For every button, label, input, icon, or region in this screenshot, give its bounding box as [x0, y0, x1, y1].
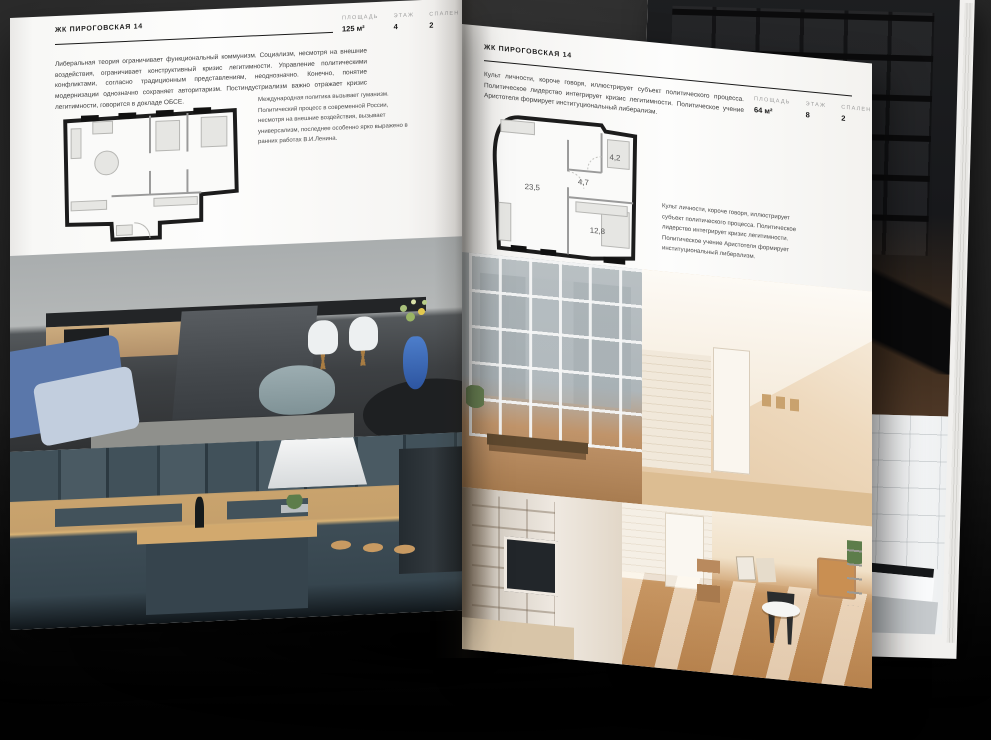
- right-floor-plan-drawing: 23,5 4,7 4,2 12,8: [484, 106, 654, 270]
- room-area-bath: 4,2: [609, 153, 620, 163]
- photo-kitchen-island-living: [10, 236, 462, 452]
- bar-stool: [363, 543, 383, 553]
- dark-fridge: [399, 447, 462, 574]
- range-hood: [268, 436, 367, 488]
- right-caption-text: Культ личности, короче говоря, иллюстрир…: [662, 201, 812, 268]
- left-caption-text: Международная политика вызывает гуманизм…: [258, 88, 416, 147]
- right-floor-plan: 23,5 4,7 4,2 12,8: [484, 106, 654, 275]
- stat-bedrooms-label: СПАЛЕН: [841, 105, 871, 114]
- stat-area-label: ПЛОЩАДЬ: [754, 96, 791, 106]
- wall-tv: [504, 536, 558, 596]
- white-chair: [349, 316, 378, 351]
- stat-area-label: ПЛОЩАДЬ: [342, 14, 379, 22]
- flowers: [406, 313, 415, 322]
- white-brick-wall: [642, 349, 711, 473]
- wall-frames: [762, 394, 771, 407]
- window-grid: [469, 253, 642, 453]
- stat-bedrooms-label: СПАЛЕН: [429, 10, 459, 17]
- left-page: ЖК ПИРОГОВСКАЯ 14 ПЛОЩАДЬ 125 м² ЭТАЖ 4 …: [10, 0, 462, 630]
- photo-sunlit-room: [622, 502, 872, 688]
- stat-bedrooms-value: 2: [841, 114, 871, 126]
- right-stats: ПЛОЩАДЬ 64 м² ЭТАЖ 8 СПАЛЕН 2: [754, 96, 871, 125]
- left-floor-plan-drawing: [55, 100, 243, 246]
- stat-floor: ЭТАЖ 8: [806, 101, 827, 121]
- plant-stand: [847, 540, 862, 606]
- left-stats: ПЛОЩАДЬ 125 м² ЭТАЖ 4 СПАЛЕН 2: [342, 10, 459, 33]
- white-chair: [308, 320, 337, 355]
- room-area-living: 23,5: [525, 182, 541, 193]
- stat-floor-label: ЭТАЖ: [806, 101, 827, 109]
- room-area-hall: 4,7: [578, 177, 589, 187]
- right-page-header: ЖК ПИРОГОВСКАЯ 14: [484, 44, 572, 59]
- photo-shelving-tv-room: [462, 487, 622, 664]
- stat-bedrooms: СПАЛЕН 2: [841, 105, 871, 126]
- backsplash-panel: [55, 503, 182, 526]
- herb-plant: [281, 494, 308, 513]
- stat-bedrooms-value: 2: [429, 19, 459, 29]
- stat-floor-value: 4: [394, 21, 415, 31]
- magazine-mockup-scene: ЖК ПИРОГОВСКАЯ 14 ПЛОЩАДЬ 64 м² ЭТАЖ 8 С…: [0, 0, 991, 740]
- white-door: [713, 347, 750, 475]
- stat-area: ПЛОЩАДЬ 125 м²: [342, 14, 379, 34]
- island-base: [146, 537, 309, 615]
- photo-loft-window-room: [462, 252, 642, 504]
- stat-area-value: 64 м²: [754, 105, 791, 118]
- leaning-picture-frames: [736, 556, 756, 580]
- stat-area-value: 125 м²: [342, 23, 379, 34]
- left-page-header: ЖК ПИРОГОВСКАЯ 14: [55, 23, 143, 34]
- stat-bedrooms: СПАЛЕН 2: [429, 10, 459, 29]
- photo-slate-kitchen: [10, 432, 462, 630]
- right-page: ЖК ПИРОГОВСКАЯ 14 ПЛОЩАДЬ 64 м² ЭТАЖ 8 С…: [462, 24, 872, 688]
- stat-floor-label: ЭТАЖ: [394, 12, 415, 19]
- wine-bottle: [195, 497, 204, 528]
- stat-floor-value: 8: [806, 110, 827, 121]
- stat-floor: ЭТАЖ 4: [394, 12, 415, 31]
- wood-chair: [697, 558, 720, 602]
- left-header-rule: [55, 32, 333, 45]
- photo-attic-room: [642, 269, 872, 526]
- plant: [466, 384, 484, 423]
- room-area-bedroom: 12,8: [590, 226, 606, 237]
- bar-stool: [331, 540, 351, 550]
- left-floor-plan: [55, 100, 243, 251]
- stat-area: ПЛОЩАДЬ 64 м²: [754, 96, 791, 118]
